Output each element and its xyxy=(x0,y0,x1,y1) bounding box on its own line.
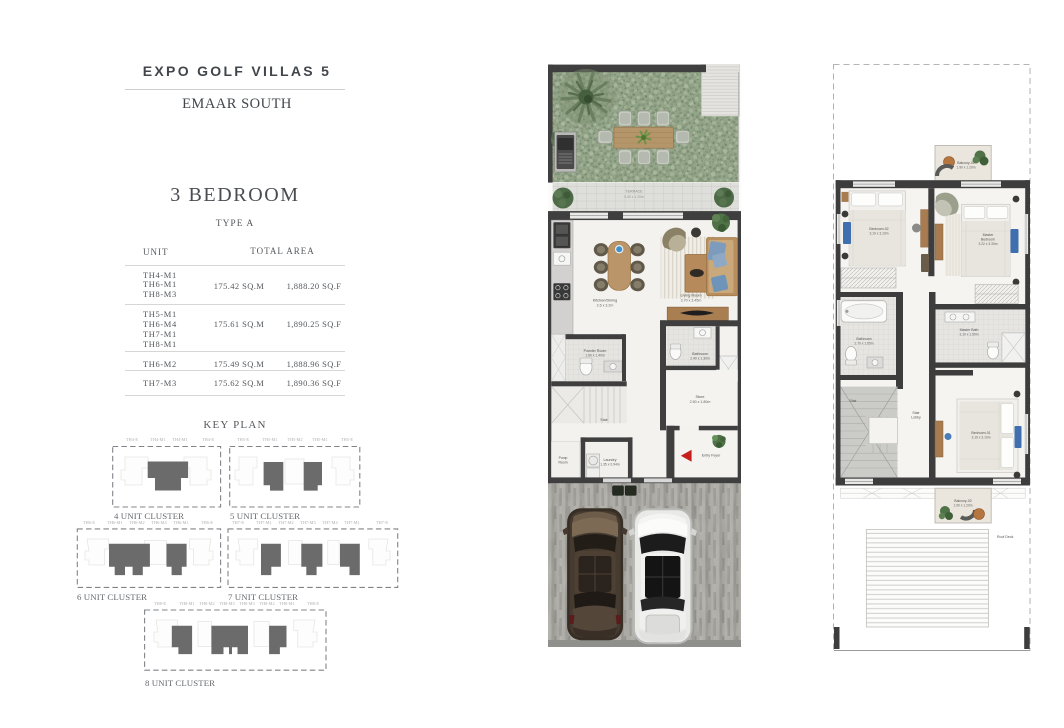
svg-text:TH5-E: TH5-E xyxy=(341,437,353,442)
svg-text:1.90 x 1.20m: 1.90 x 1.20m xyxy=(953,504,972,508)
svg-text:Balcony-02: Balcony-02 xyxy=(954,499,972,503)
svg-text:TH6-E: TH6-E xyxy=(83,520,95,525)
svg-text:2.6 x 3.2m: 2.6 x 3.2m xyxy=(597,304,614,308)
svg-text:Bathroom: Bathroom xyxy=(692,352,708,356)
svg-text:TH7-M2: TH7-M2 xyxy=(278,520,293,525)
svg-text:Stair: Stair xyxy=(849,399,857,403)
svg-text:3.10 x 1.50m: 3.10 x 1.50m xyxy=(959,333,978,337)
svg-text:TERRACE: TERRACE xyxy=(625,190,643,194)
svg-text:TH7-M1: TH7-M1 xyxy=(256,520,271,525)
svg-text:TH8-E: TH8-E xyxy=(307,601,319,606)
svg-text:Room: Room xyxy=(558,461,567,465)
svg-text:1.35 x 0.94m: 1.35 x 0.94m xyxy=(600,463,620,467)
svg-text:3.70 x 3.45m: 3.70 x 3.45m xyxy=(681,299,702,303)
svg-text:TH6-M4: TH6-M4 xyxy=(151,520,167,525)
svg-text:TH5-M1: TH5-M1 xyxy=(262,437,277,442)
svg-text:Bedroom-01: Bedroom-01 xyxy=(971,431,990,435)
svg-text:TH6-E: TH6-E xyxy=(201,520,213,525)
svg-text:TH4-M1: TH4-M1 xyxy=(150,437,165,442)
svg-text:TH4-E: TH4-E xyxy=(126,437,138,442)
svg-text:2.50 x 1.80m: 2.50 x 1.80m xyxy=(690,400,711,404)
svg-text:TH7-M1: TH7-M1 xyxy=(344,520,359,525)
svg-text:2.70 x 1.65m: 2.70 x 1.65m xyxy=(854,342,873,346)
svg-text:Master Bath: Master Bath xyxy=(960,328,979,332)
svg-text:Store: Store xyxy=(695,395,704,399)
svg-text:TH5-M2: TH5-M2 xyxy=(287,437,302,442)
svg-text:Bedroom: Bedroom xyxy=(981,238,995,242)
svg-text:Roof Deck: Roof Deck xyxy=(997,535,1014,539)
svg-text:TH5-M1: TH5-M1 xyxy=(312,437,327,442)
svg-text:TH4-E: TH4-E xyxy=(202,437,214,442)
svg-text:Lobby: Lobby xyxy=(911,416,921,420)
svg-text:TH8-M1: TH8-M1 xyxy=(179,601,194,606)
svg-text:Pump: Pump xyxy=(559,456,568,460)
svg-text:Living Room: Living Room xyxy=(680,294,701,298)
svg-text:3.22 x 3.30m: 3.22 x 3.30m xyxy=(978,242,997,246)
svg-text:Powder Room: Powder Room xyxy=(584,349,607,353)
svg-text:5.30 x 1.20m: 5.30 x 1.20m xyxy=(624,195,644,199)
svg-text:TH8-M3: TH8-M3 xyxy=(239,601,254,606)
svg-text:TH8-M2: TH8-M2 xyxy=(199,601,214,606)
svg-text:TH6-M2: TH6-M2 xyxy=(129,520,144,525)
svg-text:TH7-E: TH7-E xyxy=(232,520,244,525)
svg-text:TH7-E: TH7-E xyxy=(376,520,388,525)
svg-text:Kitchen/Dining: Kitchen/Dining xyxy=(593,299,617,303)
svg-text:TH8-M3: TH8-M3 xyxy=(219,601,234,606)
svg-text:Stair: Stair xyxy=(600,418,608,422)
svg-text:6 UNIT CLUSTER: 6 UNIT CLUSTER xyxy=(77,592,147,602)
svg-text:TH8-M2: TH8-M2 xyxy=(259,601,274,606)
svg-text:TH8-M1: TH8-M1 xyxy=(279,601,294,606)
svg-text:TH7-M3: TH7-M3 xyxy=(300,520,315,525)
svg-text:3.10 x 3.10m: 3.10 x 3.10m xyxy=(971,436,990,440)
svg-text:1.90 x 1.20m: 1.90 x 1.20m xyxy=(956,166,975,170)
svg-text:TH6-M1: TH6-M1 xyxy=(173,520,188,525)
svg-text:Bedroom-02: Bedroom-02 xyxy=(869,227,888,231)
svg-text:TH7-M4: TH7-M4 xyxy=(322,520,338,525)
svg-text:TH8-E: TH8-E xyxy=(154,601,166,606)
svg-text:Balcony-01: Balcony-01 xyxy=(957,161,975,165)
svg-text:TH6-M1: TH6-M1 xyxy=(107,520,122,525)
svg-text:Bathroom: Bathroom xyxy=(856,337,871,341)
svg-text:TH5-E: TH5-E xyxy=(237,437,249,442)
svg-text:Entry Foyer: Entry Foyer xyxy=(702,454,721,458)
svg-text:Master: Master xyxy=(983,233,995,237)
svg-text:Laundry: Laundry xyxy=(604,458,617,462)
svg-text:Stair: Stair xyxy=(912,411,920,415)
svg-text:2.40 x 1.30m: 2.40 x 1.30m xyxy=(690,357,710,361)
svg-text:1.90 x 1.40m: 1.90 x 1.40m xyxy=(585,354,605,358)
svg-text:8 UNIT CLUSTER: 8 UNIT CLUSTER xyxy=(145,678,215,688)
svg-text:3.10 x 3.10m: 3.10 x 3.10m xyxy=(869,232,888,236)
svg-text:TH4-M1: TH4-M1 xyxy=(172,437,187,442)
